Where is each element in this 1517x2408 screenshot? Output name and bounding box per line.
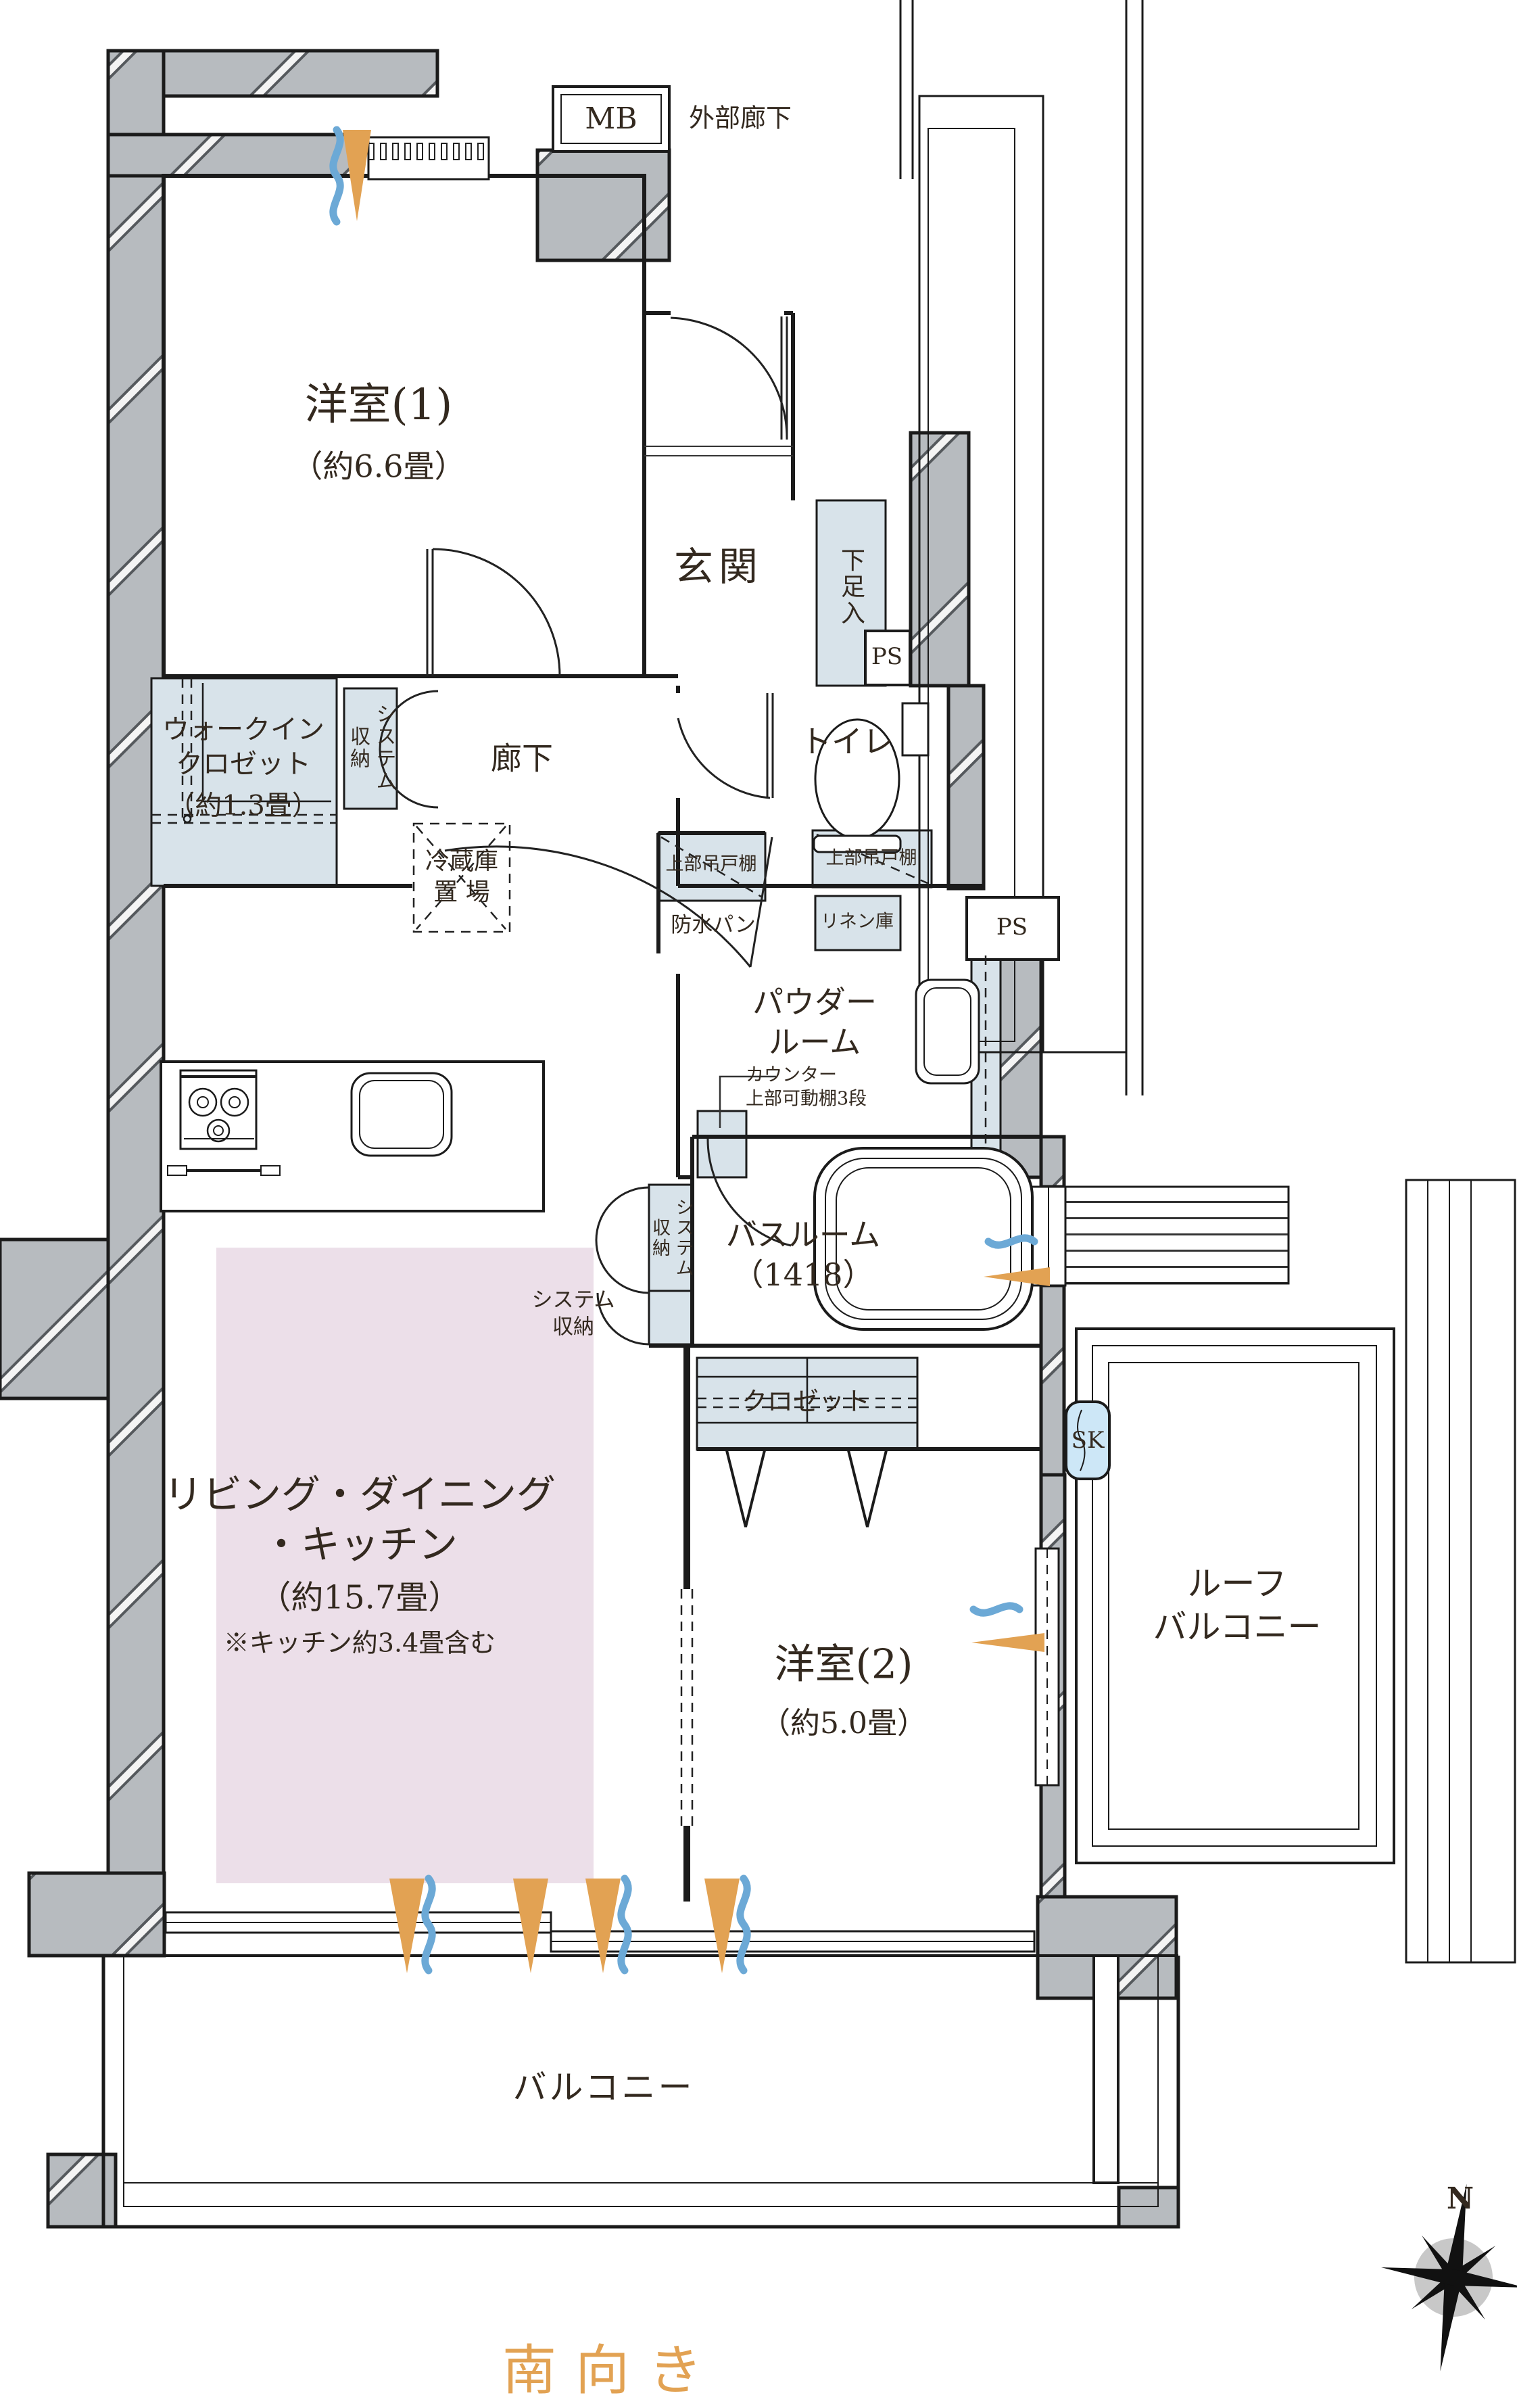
ldk-note-label: ※キッチン約3.4畳含む bbox=[224, 1627, 496, 1660]
floor-plan-graphics bbox=[0, 0, 1517, 2408]
toilet-label: トイレ bbox=[800, 722, 894, 762]
ps-upper-label: PS bbox=[871, 642, 902, 672]
mb-label: MB bbox=[585, 100, 637, 138]
upper-cabinet-left-label: 上部吊戸棚 bbox=[666, 853, 757, 877]
roof-balcony-label: ルーフ バルコニー bbox=[1153, 1562, 1322, 1649]
kitchen-sink bbox=[352, 1073, 452, 1156]
washbasin bbox=[916, 980, 979, 1083]
floor-plan: MB 外部廊下 洋室(1) （約6.6畳） 玄関 下足入 PS ウォークイン ク… bbox=[0, 0, 1517, 2408]
entrance-step-line bbox=[644, 446, 793, 456]
wic-size-label: （約1.3畳） bbox=[168, 788, 319, 823]
room2-name-label: 洋室(2) bbox=[775, 1639, 913, 1691]
system-storage-1-label: システム 収納 bbox=[345, 703, 397, 793]
room1-name-label: 洋室(1) bbox=[305, 378, 453, 433]
system-storage-2-label: システム 収納 bbox=[647, 1198, 694, 1279]
compass-icon bbox=[1368, 2173, 1517, 2381]
room1-size-label: （約6.6畳） bbox=[291, 447, 465, 487]
sk-label: SK bbox=[1071, 1426, 1105, 1456]
fridge-space-label: 冷蔵庫 置 場 bbox=[425, 846, 498, 908]
ps-lower-label: PS bbox=[996, 913, 1028, 943]
linen-cabinet-label: リネン庫 bbox=[821, 911, 894, 935]
wic-name-label: ウォークイン クロゼット bbox=[162, 713, 324, 782]
counter-note-label: カウンター 上部可動棚3段 bbox=[746, 1064, 867, 1110]
hallway-label: 廊下 bbox=[491, 739, 553, 779]
powder-room-label: パウダー ルーム bbox=[752, 983, 877, 1062]
closet-door-marks bbox=[727, 1450, 886, 1527]
entrance-label: 玄関 bbox=[674, 542, 763, 592]
ldk-size-label: （約15.7畳） bbox=[259, 1577, 461, 1618]
facing-direction-label: 南向き bbox=[502, 2336, 721, 2405]
room2-size-label: （約5.0畳） bbox=[761, 1705, 927, 1743]
bathroom-label: バスルーム （1418） bbox=[726, 1215, 881, 1295]
exterior-corridor-label: 外部廊下 bbox=[689, 102, 792, 135]
compass-north-label: N bbox=[1447, 2180, 1474, 2218]
shoe-cabinet-label: 下足入 bbox=[835, 548, 866, 627]
upper-cabinet-right-label: 上部吊戸棚 bbox=[826, 847, 917, 871]
system-storage-3-label: システム 収納 bbox=[531, 1287, 615, 1340]
closet-label: クロゼット bbox=[742, 1386, 870, 1419]
waterproof-pan-label: 防水パン bbox=[671, 912, 756, 939]
ldk-name-label: リビング・ダイニング ・キッチン bbox=[164, 1469, 556, 1569]
balcony-label: バルコニー bbox=[513, 2066, 695, 2109]
